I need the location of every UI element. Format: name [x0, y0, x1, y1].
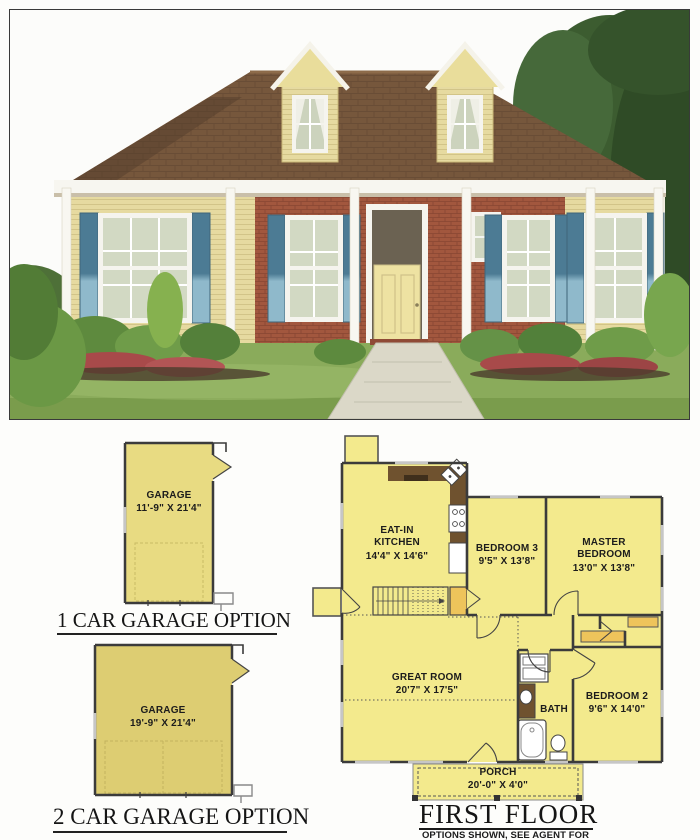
window-brick-left — [268, 215, 360, 322]
master-closet-shelf — [628, 617, 658, 627]
flyer-page: GARAGE 11'-9" X 21'4" 1 CAR GARAGE OPTIO… — [0, 0, 700, 840]
room-dims-master-bedroom: 13'0" X 13'8" — [544, 563, 664, 575]
room-label-master-bedroom: MASTER BEDROOM — [544, 537, 664, 561]
garage2-caption: 2 CAR GARAGE OPTION — [53, 805, 287, 833]
garage2-dims: 19'-9" X 21'4" — [103, 718, 223, 730]
garage1-plan — [125, 443, 233, 611]
front-door — [366, 204, 428, 345]
first-floor-title: FIRST FLOOR — [419, 801, 593, 830]
stair-closet — [450, 587, 467, 615]
staircase — [373, 587, 448, 615]
garage2-label: GARAGE — [103, 705, 223, 717]
window-left-wing — [80, 213, 210, 323]
room-label-great-room: GREAT ROOM — [367, 672, 487, 684]
side-stoop — [313, 588, 341, 616]
house-rendering-frame — [9, 9, 690, 420]
porch-beam — [54, 180, 666, 197]
room-dims-kitchen: 14'4" X 14'6" — [337, 551, 457, 563]
window-brick-right — [485, 215, 572, 322]
room-label-bedroom2: BEDROOM 2 — [557, 691, 677, 703]
garage1-dims: 11'-9" X 21'4" — [109, 503, 229, 515]
bedroom2-closet-shelf — [581, 631, 625, 642]
room-dims-porch: 20'-0" X 4'0" — [438, 780, 558, 792]
room-label-kitchen: EAT-IN KITCHEN — [337, 525, 457, 549]
garage1-label: GARAGE — [109, 490, 229, 502]
room-dims-great-room: 20'7" X 17'5" — [367, 685, 487, 697]
house-rendering — [10, 10, 689, 419]
garage1-caption: 1 CAR GARAGE OPTION — [57, 609, 277, 635]
room-label-porch: PORCH — [438, 767, 558, 779]
room-dims-bedroom2: 9'6" X 14'0" — [557, 704, 677, 716]
options-note: OPTIONS SHOWN, SEE AGENT FOR DETAILS — [403, 830, 608, 840]
chimney — [345, 436, 378, 463]
